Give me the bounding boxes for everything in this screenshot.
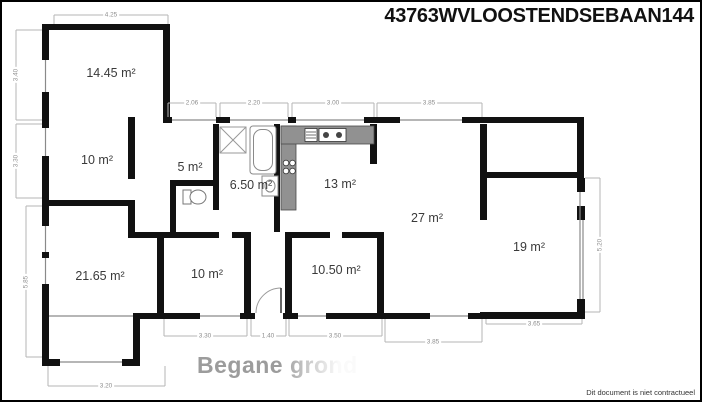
door-swing	[256, 288, 281, 313]
dimension-label: 2.06	[184, 99, 200, 106]
dimension-label: 3.30	[12, 153, 19, 169]
room-label-top-left: 14.45 m²	[86, 66, 135, 80]
watermark-fade-overlay	[280, 348, 370, 382]
room-label-middle-left: 10 m²	[81, 153, 113, 167]
bathtub-icon	[250, 126, 276, 174]
room-label-bathroom: 6.50 m²	[230, 178, 272, 192]
room-label-bottom-center: 10.50 m²	[311, 263, 360, 277]
dimension-label: 3.40	[12, 67, 19, 83]
dimension-label: 3.20	[98, 382, 114, 389]
dimension-label: 3.50	[327, 332, 343, 339]
room-label-hallway: 5 m²	[178, 160, 203, 174]
dimension-label: 2.20	[246, 99, 262, 106]
room-label-kitchen: 13 m²	[324, 177, 356, 191]
dimension-label: 5.85	[22, 274, 29, 290]
floor-plan-drawing	[2, 2, 700, 400]
room-label-bottom-middle: 10 m²	[191, 267, 223, 281]
page-title: 43763WVLOOSTENDSEBAAN144	[384, 5, 694, 28]
dimension-label: 3.85	[421, 99, 437, 106]
kitchen-sink-icon	[305, 129, 346, 142]
dimension-label: 1.40	[260, 332, 276, 339]
dimension-label: 3.65	[526, 320, 542, 327]
room-label-right: 19 m²	[513, 240, 545, 254]
toilet-icon	[183, 190, 206, 204]
windows	[42, 60, 585, 366]
dimension-label: 5.20	[596, 237, 603, 253]
dimension-label: 4.25	[103, 11, 119, 18]
dimension-label: 3.00	[325, 99, 341, 106]
dimension-label: 3.30	[197, 332, 213, 339]
floor-plan-page: 43763WVLOOSTENDSEBAAN144 14.45 m² 10 m² …	[0, 0, 702, 402]
kitchen-counter	[281, 126, 374, 210]
shower-icon	[220, 127, 246, 153]
disclaimer-text: Dit document is niet contractueel	[586, 388, 695, 397]
dimension-label: 3.85	[425, 338, 441, 345]
room-label-bottom-left: 21.65 m²	[75, 269, 124, 283]
room-label-living: 27 m²	[411, 211, 443, 225]
